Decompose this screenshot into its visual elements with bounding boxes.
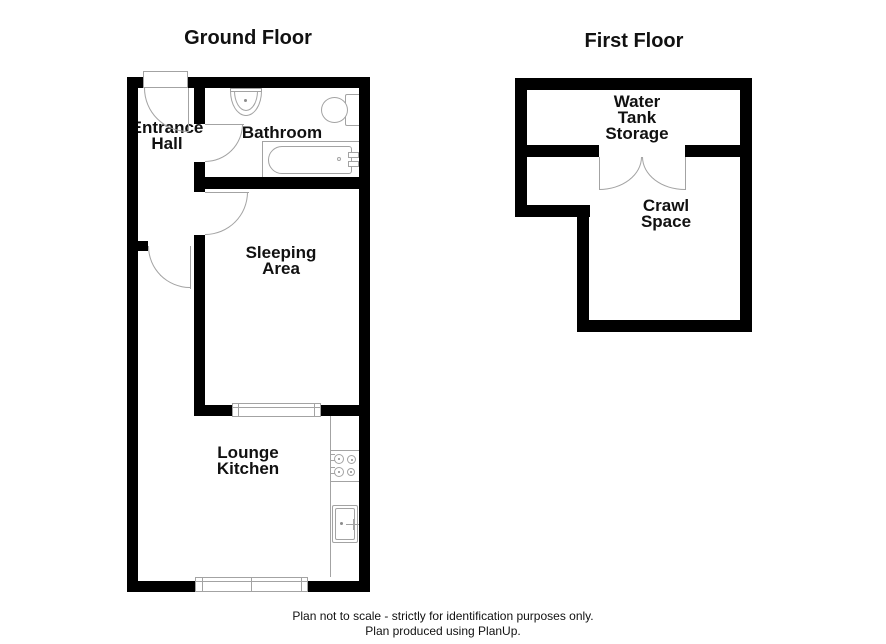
- wall: [685, 145, 740, 157]
- window-rail: [232, 407, 321, 408]
- counter-line: [330, 416, 331, 577]
- wall: [515, 78, 752, 90]
- door-swing-arc: [205, 192, 248, 235]
- door-swing-arc: [599, 157, 642, 190]
- door-leaf: [190, 246, 191, 289]
- wall: [577, 320, 752, 332]
- wall: [527, 145, 599, 157]
- wall: [515, 78, 527, 217]
- window-tick: [238, 403, 239, 417]
- hob-edge: [330, 481, 359, 482]
- hob-burner: [334, 467, 344, 477]
- hob-burner: [347, 468, 355, 476]
- door-swing-arc: [148, 246, 190, 288]
- window-tick: [202, 577, 203, 592]
- room-label-line: Area: [211, 261, 351, 277]
- window-tick: [251, 577, 252, 592]
- hob-edge: [330, 450, 359, 451]
- wall: [320, 405, 370, 416]
- bath-tap: [348, 161, 359, 167]
- basin-drain: [244, 99, 247, 102]
- wall: [359, 77, 370, 592]
- wall: [194, 177, 370, 189]
- toilet-bowl: [321, 97, 348, 123]
- bath-tap: [348, 152, 359, 158]
- room-label-crawl-space: Crawl Space: [596, 198, 736, 230]
- bath-drain: [337, 157, 341, 161]
- room-label-sleeping-area: Sleeping Area: [211, 245, 351, 277]
- window-tick: [314, 403, 315, 417]
- floor-plan-canvas: Ground Floor Entrance Hall Bathroom Slee…: [0, 0, 886, 644]
- wall: [194, 88, 205, 124]
- hob-burner: [347, 455, 356, 464]
- window: [232, 403, 321, 417]
- wall: [740, 78, 752, 332]
- room-label-lounge-kitchen: Lounge Kitchen: [178, 445, 318, 477]
- footer: Plan not to scale - strictly for identif…: [0, 609, 886, 639]
- footer-disclaimer: Plan not to scale - strictly for identif…: [0, 609, 886, 624]
- wall: [577, 205, 589, 332]
- wall: [127, 77, 138, 592]
- door-leaf: [188, 88, 189, 132]
- room-label-line: Storage: [567, 126, 707, 142]
- door-leaf: [685, 157, 686, 190]
- sink-drain: [340, 522, 343, 525]
- door-swing-arc: [205, 124, 243, 162]
- room-label-water-tank-storage: Water Tank Storage: [567, 94, 707, 142]
- hob-burner: [334, 454, 344, 464]
- ground-floor-title: Ground Floor: [128, 30, 368, 46]
- first-floor-title: First Floor: [514, 33, 754, 49]
- window-tick: [301, 577, 302, 592]
- door-swing-arc: [642, 157, 685, 190]
- room-label-line: Space: [596, 214, 736, 230]
- room-label-line: Kitchen: [178, 461, 318, 477]
- wall: [194, 235, 205, 416]
- footer-credit: Plan produced using PlanUp.: [0, 624, 886, 639]
- entrance-door-recess: [143, 71, 188, 88]
- wall: [137, 241, 148, 251]
- sink-tap: [353, 519, 354, 530]
- wall: [194, 405, 234, 416]
